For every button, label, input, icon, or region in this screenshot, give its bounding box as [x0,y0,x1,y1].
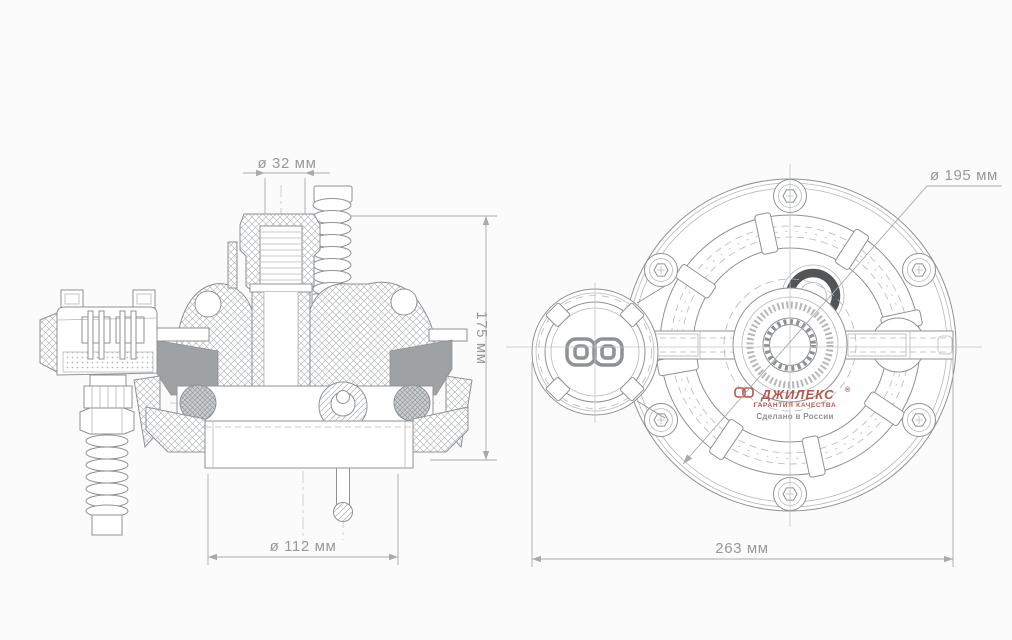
side-view: ø 32 мм 175 мм ø 112 мм [40,155,497,565]
switch-tab-left [61,290,83,308]
lug-hole-left [195,291,221,317]
seal-chamber [177,385,433,422]
registered-mark: ® [845,386,851,394]
terminal-screw [120,311,125,359]
switch-tab-right [133,290,155,308]
dim-label-width: 263 мм [715,540,768,557]
flange-screw [903,254,936,287]
cable-gland-spring [86,435,128,535]
brand-tagline: ГАРАНТИЯ КАЧЕСТВА [754,402,837,409]
dim-label-flange: ø 195 мм [930,167,998,184]
drawing-canvas: ø 32 мм 175 мм ø 112 мм [0,0,1012,640]
pump-technical-drawing: ø 32 мм 175 мм ø 112 мм [0,0,1012,640]
made-in-text: Сделано в России [756,412,833,421]
switch-arm [157,328,209,341]
lug-hole-right [391,289,417,315]
terminal-screw [88,311,93,359]
dim-label-base: ø 112 мм [270,538,337,555]
terminal-screw [99,311,104,359]
dim-label-inlet: ø 32 мм [257,155,316,172]
gland-nut [80,408,134,434]
o-ring-right [394,385,430,421]
brand-text: ДЖИЛЕКС [760,387,834,402]
dim-label-height: 175 мм [473,311,490,364]
top-view: ДЖИЛЕКС ® ГАРАНТИЯ КАЧЕСТВА Сделано в Ро… [506,164,1002,567]
flange-screw [645,254,678,287]
terminal-screw [131,311,136,359]
flange-screw [903,404,936,437]
